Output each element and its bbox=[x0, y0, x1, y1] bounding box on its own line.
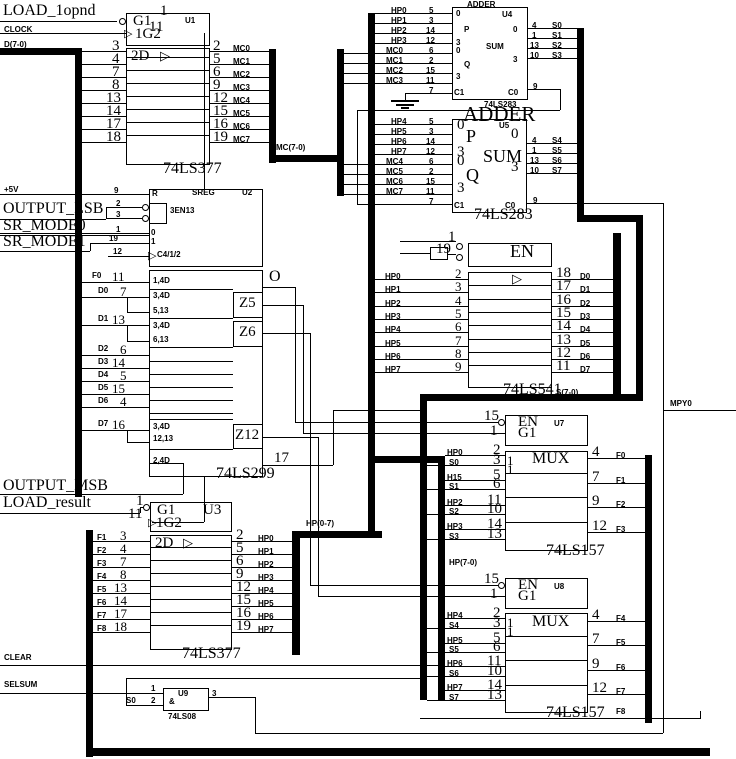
wire-segment bbox=[0, 219, 106, 220]
u7-part-label: 74LS157 bbox=[546, 542, 605, 560]
ground-symbol bbox=[396, 104, 414, 106]
wire-segment bbox=[505, 660, 588, 661]
wire-segment bbox=[127, 341, 149, 342]
u7-in-net: HP3 bbox=[447, 522, 463, 531]
u5-in-pin: 11 bbox=[426, 187, 434, 196]
schematic-canvas: LOAD_1opndCLOCKD(7-0)+5VOUTPUT_LSBSR_MOD… bbox=[0, 0, 736, 759]
wire-segment bbox=[663, 203, 664, 733]
u4-in-net: HP0 bbox=[391, 6, 407, 15]
u1-pin1-bubble bbox=[119, 18, 126, 25]
u3-in-pin: 18 bbox=[114, 619, 127, 635]
u5-pin-7: 7 bbox=[429, 197, 433, 206]
bus-d bbox=[75, 48, 82, 497]
wire-segment bbox=[108, 256, 149, 257]
wire-segment bbox=[405, 93, 406, 100]
u5-in-net: MC6 bbox=[386, 177, 403, 186]
u3-out-net: HP1 bbox=[258, 547, 274, 556]
u2-pin2-bubble bbox=[142, 204, 149, 211]
u7-in-net: HP2 bbox=[447, 498, 463, 507]
u1-out-net: MC3 bbox=[233, 83, 250, 92]
u5-out-pin: 10 bbox=[530, 166, 539, 175]
u2-en-label: 3EN13 bbox=[170, 206, 194, 215]
u2-r-label: R bbox=[152, 189, 158, 198]
u541-out-pin: 11 bbox=[556, 358, 570, 375]
signal-selsum: SELSUM bbox=[4, 680, 37, 689]
u8-pin-1: 1 bbox=[490, 586, 498, 603]
u2-in-net: D5 bbox=[98, 383, 108, 392]
u2-en-box[interactable] bbox=[149, 203, 167, 224]
wire-segment bbox=[0, 235, 149, 236]
u5-in-net: MC5 bbox=[386, 167, 403, 176]
u7-in-net: S0 bbox=[449, 458, 459, 467]
u4-in-net: MC0 bbox=[386, 46, 403, 55]
u3-clock-wedge-icon: ▷ bbox=[148, 516, 156, 529]
u541-out-net: D0 bbox=[580, 272, 590, 281]
u5-in-net: HP7 bbox=[391, 147, 407, 156]
u4-sum-label: SUM bbox=[486, 42, 504, 51]
wire-segment bbox=[149, 449, 233, 450]
u4-p-label: P bbox=[464, 25, 469, 34]
net-label-f8: F8 bbox=[616, 707, 625, 716]
u4-in-net: MC2 bbox=[386, 66, 403, 75]
bus-f bbox=[86, 748, 710, 756]
wire-segment bbox=[150, 586, 232, 587]
u8-out-pin: 7 bbox=[592, 631, 600, 648]
u5-c1-label: C1 bbox=[454, 201, 464, 210]
wire-segment bbox=[527, 89, 560, 90]
u2-fn: 3,4D bbox=[153, 321, 170, 330]
u3-triangle-icon: ▷ bbox=[183, 535, 193, 551]
u7-in-pin: 6 bbox=[493, 476, 501, 493]
wire-segment bbox=[375, 134, 452, 135]
bus-d bbox=[0, 48, 82, 55]
u4-out-net: S2 bbox=[552, 41, 562, 50]
u3-2d-label: 2D bbox=[155, 535, 173, 552]
signal-load-1opnd: LOAD_1opnd bbox=[3, 2, 95, 20]
u7-g1-label: G1 bbox=[518, 425, 536, 442]
u3-out-net: HP2 bbox=[258, 560, 274, 569]
u8-out-net: F6 bbox=[616, 663, 625, 672]
bus-f-out bbox=[645, 455, 652, 723]
u8-out-pin: 9 bbox=[592, 656, 600, 673]
u7-out-pin: 9 bbox=[592, 493, 600, 510]
u7-out-net: F2 bbox=[616, 500, 625, 509]
wire-segment bbox=[505, 522, 588, 523]
wire-segment bbox=[333, 410, 334, 465]
u541-in-net: HP1 bbox=[385, 285, 401, 294]
u3-in-net: F5 bbox=[97, 585, 106, 594]
u5-out-net: S4 bbox=[552, 136, 562, 145]
wire-segment bbox=[150, 560, 232, 561]
wire-segment bbox=[149, 400, 233, 401]
u541-in-net: HP4 bbox=[385, 325, 401, 334]
bus-label-hp-mux: HP(7-0) bbox=[449, 558, 477, 567]
u5-q-label: Q bbox=[466, 165, 479, 186]
u7-sel-mark: 1 bbox=[507, 462, 514, 478]
u8-in-net: HP7 bbox=[447, 683, 463, 692]
wire-segment bbox=[663, 410, 736, 411]
u4-in-pin: 3 bbox=[429, 16, 433, 25]
u5-out-net: S6 bbox=[552, 156, 562, 165]
u541-pin-19: 19 bbox=[436, 241, 451, 258]
u2-pin3-bubble bbox=[142, 215, 149, 222]
u4-mark: 3 bbox=[456, 72, 460, 81]
u1-out-net: MC2 bbox=[233, 70, 250, 79]
wire-segment bbox=[357, 204, 452, 205]
u5-part-label: 74LS283 bbox=[474, 206, 533, 224]
u7-out-pin: 7 bbox=[592, 469, 600, 486]
u4-mark: 0 bbox=[456, 46, 460, 55]
u5-out-pin: 13 bbox=[530, 156, 539, 165]
wire-segment bbox=[150, 625, 232, 626]
u2-in-pin: 7 bbox=[120, 284, 127, 300]
u4-title: ADDER bbox=[467, 0, 495, 9]
u1-in-pin: 18 bbox=[106, 129, 121, 146]
u4-out-net: S0 bbox=[552, 21, 562, 30]
u9-s0-net: S0 bbox=[126, 696, 136, 705]
u3-1g2-label: 1G2 bbox=[156, 515, 182, 532]
u4-out-pin: 4 bbox=[532, 21, 536, 30]
bus-mc bbox=[269, 155, 344, 162]
u4-in-pin: 5 bbox=[429, 6, 433, 15]
u2-in-net: D7 bbox=[98, 419, 108, 428]
u2-in-net: D1 bbox=[98, 314, 108, 323]
u4-box[interactable] bbox=[452, 7, 528, 100]
wire-segment bbox=[263, 333, 310, 334]
wire-segment bbox=[150, 573, 232, 574]
wire-segment bbox=[0, 665, 438, 666]
u8-out-net: F7 bbox=[616, 687, 625, 696]
u3-body-box[interactable] bbox=[150, 535, 232, 650]
u7-in-net: S1 bbox=[449, 482, 459, 491]
u3-out-net: HP0 bbox=[258, 534, 274, 543]
u3-pin1-bubble bbox=[143, 504, 150, 511]
u4-in-net: MC1 bbox=[386, 56, 403, 65]
u5-in-pin: 14 bbox=[426, 137, 435, 146]
wire-segment bbox=[700, 711, 701, 719]
wire-segment bbox=[310, 333, 311, 585]
wire-segment bbox=[255, 733, 663, 734]
u2-pin-19: 19 bbox=[109, 234, 118, 243]
u3-out-net: HP6 bbox=[258, 612, 274, 621]
wire-segment bbox=[149, 387, 233, 388]
u7-out-pin: 12 bbox=[592, 518, 607, 535]
wire-segment bbox=[126, 109, 210, 110]
u8-in-net: HP5 bbox=[447, 636, 463, 645]
u541-out-net: D3 bbox=[580, 312, 590, 321]
u3-in-net: F8 bbox=[97, 624, 106, 633]
wire-segment bbox=[375, 23, 452, 24]
u2-o-label: O bbox=[269, 268, 281, 286]
u9-and-symbol: & bbox=[169, 697, 175, 706]
u8-title: MUX bbox=[532, 613, 569, 631]
u541-out-net: D4 bbox=[580, 325, 590, 334]
wire-segment bbox=[527, 203, 663, 204]
wire-segment bbox=[127, 430, 128, 442]
bus-hp-out bbox=[292, 531, 382, 538]
u2-pin-2: 2 bbox=[116, 199, 120, 208]
wire-segment bbox=[126, 678, 420, 679]
bus-hp bbox=[368, 456, 445, 463]
u4-out-pin: 13 bbox=[530, 41, 539, 50]
u541-body-box[interactable] bbox=[468, 272, 552, 388]
wire-segment bbox=[357, 110, 358, 204]
u9-pin-2: 2 bbox=[151, 696, 155, 705]
u541-pin1-bubble bbox=[456, 243, 463, 250]
wire-segment bbox=[149, 347, 233, 348]
wire-segment bbox=[263, 287, 295, 288]
u2-fn: 3,4D bbox=[153, 422, 170, 431]
u5-out-net: S7 bbox=[552, 166, 562, 175]
wire-segment bbox=[149, 361, 233, 362]
u8-sel-mark: 1 bbox=[507, 624, 514, 640]
u1-out-net: MC1 bbox=[233, 57, 250, 66]
u7-out-pin: 4 bbox=[592, 444, 600, 461]
u4-in-pin: 6 bbox=[429, 46, 433, 55]
u2-in-net: D0 bbox=[98, 286, 108, 295]
bus-label-mc: MC(7-0) bbox=[276, 143, 305, 152]
u2-in-net: D3 bbox=[98, 357, 108, 366]
u8-part-label: 74LS157 bbox=[546, 704, 605, 722]
u5-mark: 0 bbox=[457, 153, 465, 170]
u5-p-label: P bbox=[466, 126, 476, 147]
u1-body-box[interactable] bbox=[126, 48, 210, 165]
ground-symbol bbox=[391, 100, 419, 102]
u7-ref: U7 bbox=[554, 419, 564, 428]
u541-in-net: HP3 bbox=[385, 312, 401, 321]
u7-in-net: H15 bbox=[447, 473, 462, 482]
u7-pin-1: 1 bbox=[490, 423, 498, 440]
u541-pin19-bubble bbox=[456, 254, 463, 261]
bus-s bbox=[577, 28, 584, 222]
wire-segment bbox=[127, 442, 149, 443]
wire-segment bbox=[303, 305, 304, 433]
u5-ref: U5 bbox=[499, 121, 509, 130]
u4-c1-label: C1 bbox=[454, 88, 464, 97]
wire-segment bbox=[0, 194, 149, 195]
u8-in-net: HP4 bbox=[447, 611, 463, 620]
bus-s541 bbox=[613, 233, 621, 394]
wire-segment bbox=[149, 419, 233, 420]
u4-out-pin: 1 bbox=[532, 31, 536, 40]
wire-segment bbox=[149, 289, 233, 290]
wire-segment bbox=[468, 339, 552, 340]
u7-in-net: S2 bbox=[449, 507, 459, 516]
bus-s bbox=[577, 215, 643, 222]
u541-out-net: D1 bbox=[580, 285, 590, 294]
u4-c0-label: C0 bbox=[508, 88, 518, 97]
u9-ref: U9 bbox=[178, 689, 188, 698]
u541-out-net: D5 bbox=[580, 339, 590, 348]
u8-in-pin: 13 bbox=[487, 687, 502, 704]
u3-out-net: HP4 bbox=[258, 586, 274, 595]
u541-out-net: D6 bbox=[580, 352, 590, 361]
wire-segment bbox=[560, 89, 561, 110]
u4-in-net: HP2 bbox=[391, 26, 407, 35]
u8-out-pin: 4 bbox=[592, 607, 600, 624]
u541-in-net: HP0 bbox=[385, 272, 401, 281]
signal-plus5v: +5V bbox=[4, 185, 18, 194]
u5-in-pin: 15 bbox=[426, 177, 435, 186]
u2-clk-label: C4/1/2 bbox=[157, 250, 181, 259]
wire-segment bbox=[0, 693, 163, 694]
bus-mc bbox=[337, 49, 344, 196]
wire-segment bbox=[310, 585, 498, 586]
u8-pin15-bubble bbox=[498, 582, 505, 589]
wire-segment bbox=[255, 697, 256, 733]
u1-clock-wedge-icon: ▷ bbox=[124, 27, 132, 40]
u2-in-pin: 13 bbox=[112, 312, 125, 328]
wire-segment bbox=[0, 233, 149, 234]
u4-mark: 0 bbox=[513, 25, 517, 34]
wire-segment bbox=[295, 422, 498, 423]
ground-symbol bbox=[401, 107, 409, 109]
wire-segment bbox=[318, 437, 319, 596]
u1-pin-11: 11 bbox=[149, 19, 163, 36]
u5-out-pin: 4 bbox=[532, 136, 536, 145]
wire-segment bbox=[468, 325, 552, 326]
wire-segment bbox=[150, 612, 232, 613]
u5-out-net: S5 bbox=[552, 146, 562, 155]
wire-segment bbox=[375, 144, 452, 145]
u541-en-label: EN bbox=[510, 241, 534, 262]
u3-in-net: F4 bbox=[97, 572, 106, 581]
wire-segment bbox=[90, 243, 91, 251]
wire-segment bbox=[149, 318, 233, 319]
wire-segment bbox=[0, 33, 126, 34]
u541-part-label: 74LS541 bbox=[503, 381, 562, 399]
u5-mark: 0 bbox=[511, 126, 519, 143]
wire-segment bbox=[82, 407, 149, 408]
wire-segment bbox=[375, 33, 452, 34]
wire-segment bbox=[400, 253, 430, 254]
u2-ref: U2 bbox=[242, 188, 252, 197]
u1-out-net: MC5 bbox=[233, 109, 250, 118]
wire-segment bbox=[0, 251, 90, 252]
u3-part-label: 74LS377 bbox=[182, 645, 241, 663]
u8-in-net: S5 bbox=[449, 645, 459, 654]
wire-segment bbox=[468, 352, 552, 353]
u3-in-net: F1 bbox=[97, 533, 106, 542]
wire-segment bbox=[90, 243, 149, 244]
wire-segment bbox=[0, 513, 140, 514]
u2-pin-12: 12 bbox=[113, 247, 122, 256]
u541-in-pin: 9 bbox=[455, 359, 462, 375]
u8-out-net: F5 bbox=[616, 638, 625, 647]
u4-in-net: HP1 bbox=[391, 16, 407, 25]
u2-z12-label: Z12 bbox=[235, 427, 259, 444]
u2-part-label: 74LS299 bbox=[216, 465, 275, 483]
wire-segment bbox=[468, 312, 552, 313]
u2-fn: 12,13 bbox=[153, 434, 173, 443]
u3-out-pin: 19 bbox=[236, 618, 251, 635]
u8-g1-label: G1 bbox=[518, 588, 536, 605]
bus-hp-out bbox=[292, 535, 300, 655]
u9-part-label: 74LS08 bbox=[168, 712, 196, 721]
wire-segment bbox=[468, 299, 552, 300]
u1-part-label: 74LS377 bbox=[163, 160, 222, 178]
u4-out-net: S1 bbox=[552, 31, 562, 40]
u2-in-pin: 16 bbox=[112, 417, 125, 433]
u1-out-pin: 19 bbox=[213, 129, 228, 146]
u2-z6-label: Z6 bbox=[239, 324, 256, 341]
wire-segment bbox=[126, 57, 210, 58]
u541-in-net: HP2 bbox=[385, 299, 401, 308]
u7-in-pin: 13 bbox=[487, 526, 502, 543]
u2-mode0-mark: 0 bbox=[151, 228, 155, 237]
wire-segment bbox=[505, 497, 588, 498]
wire-segment bbox=[127, 297, 128, 312]
wire-segment bbox=[468, 285, 552, 286]
u5-in-net: HP5 bbox=[391, 127, 407, 136]
u541-in-net: HP6 bbox=[385, 352, 401, 361]
wire-segment bbox=[263, 305, 303, 306]
u9-pin-1: 1 bbox=[151, 684, 155, 693]
u4-out-net: S3 bbox=[552, 51, 562, 60]
bus-s-mux bbox=[420, 394, 427, 700]
wire-segment bbox=[0, 21, 117, 22]
u5-mark: 3 bbox=[511, 159, 519, 176]
wire-segment bbox=[106, 218, 142, 219]
wire-segment bbox=[126, 122, 210, 123]
wire-segment bbox=[126, 705, 163, 706]
wire-segment bbox=[126, 83, 210, 84]
u3-in-net: F2 bbox=[97, 546, 106, 555]
u4-q-label: Q bbox=[464, 60, 470, 69]
u9-pin-3: 3 bbox=[212, 689, 216, 698]
u5-mark: 0 bbox=[457, 117, 465, 134]
u5-in-net: MC4 bbox=[386, 157, 403, 166]
u2-pin-9: 9 bbox=[114, 186, 118, 195]
u2-title: SREG bbox=[192, 188, 215, 197]
wire-segment bbox=[505, 473, 588, 474]
wire-segment bbox=[505, 685, 588, 686]
u7-title: MUX bbox=[532, 450, 569, 468]
u5-mark: 3 bbox=[457, 180, 465, 197]
u3-in-net: F3 bbox=[97, 559, 106, 568]
wire-segment bbox=[295, 287, 296, 422]
u1-out-net: MC0 bbox=[233, 44, 250, 53]
u1-out-net: MC4 bbox=[233, 96, 250, 105]
u1-ref: U1 bbox=[185, 16, 195, 25]
u2-fn: 3,4D bbox=[153, 291, 170, 300]
wire-segment bbox=[375, 124, 452, 125]
u8-out-net: F4 bbox=[616, 614, 625, 623]
u5-in-pin: 12 bbox=[426, 147, 435, 156]
u4-pin-9: 9 bbox=[533, 82, 537, 91]
u8-in-net: HP6 bbox=[447, 659, 463, 668]
u2-fn: 5,13 bbox=[153, 306, 169, 315]
u8-in-net: S4 bbox=[449, 621, 459, 630]
u2-in-pin: 4 bbox=[120, 394, 127, 410]
u5-in-pin: 5 bbox=[429, 117, 433, 126]
u2-in-pin: 11 bbox=[112, 269, 125, 285]
u541-out-net: D7 bbox=[580, 365, 590, 374]
wire-segment bbox=[468, 365, 552, 366]
u4-in-pin: 14 bbox=[426, 26, 435, 35]
u541-out-net: D2 bbox=[580, 299, 590, 308]
u3-in-net: F7 bbox=[97, 611, 106, 620]
signal-clear: CLEAR bbox=[4, 653, 32, 662]
wire-segment bbox=[333, 410, 420, 411]
u2-mode1-mark: 1 bbox=[151, 237, 155, 246]
u5-in-net: HP6 bbox=[391, 137, 407, 146]
bus-mc bbox=[269, 49, 276, 163]
u541-in-net: HP7 bbox=[385, 365, 401, 374]
wire-segment bbox=[318, 596, 505, 597]
u2-z5-label: Z5 bbox=[239, 295, 256, 312]
u4-out-pin: 10 bbox=[530, 51, 539, 60]
